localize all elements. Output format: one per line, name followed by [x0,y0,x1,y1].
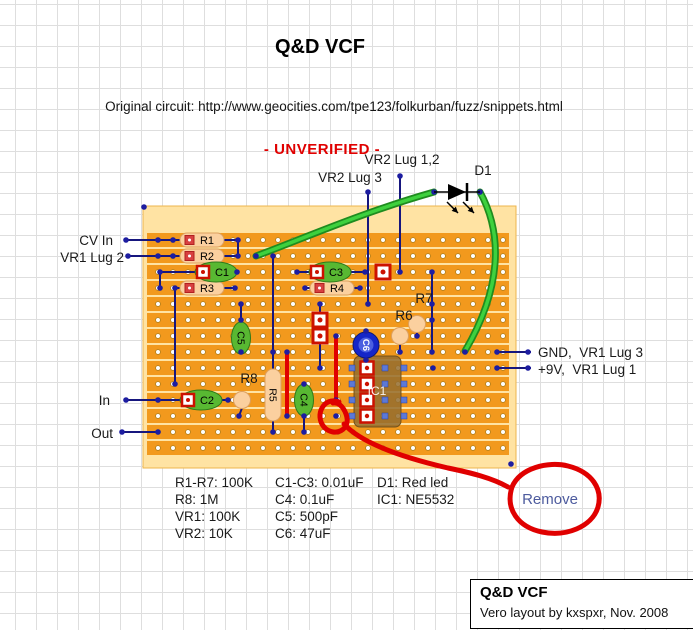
hole [201,334,206,339]
resistor-pad-dot [318,287,321,290]
ic-pin [401,365,407,371]
parts-list-column-3: D1: Red ledIC1: NE5532 [377,474,454,508]
wire-dot [123,237,129,243]
wire-dot [397,269,403,275]
hole [426,334,431,339]
hole [411,430,416,435]
source-url: Original circuit: http://www.geocities.c… [0,99,668,114]
hole [291,350,296,355]
ic-pad-dot [365,398,369,402]
parts-list-entry: D1: Red led [377,474,454,491]
hole [201,446,206,451]
hole [456,430,461,435]
parts-list-entry: R1-R7: 100K [175,474,253,491]
hole [486,334,491,339]
hole [486,446,491,451]
wire-dot [365,189,371,195]
hole [426,286,431,291]
hole [411,350,416,355]
hole [246,366,251,371]
hole [501,414,506,419]
hole [456,350,461,355]
wire-dot [123,397,129,403]
hole [471,446,476,451]
wire-dot [525,349,531,355]
ic-pin [349,381,355,387]
hole [261,318,266,323]
hole [456,366,461,371]
ic-pin [401,413,407,419]
wire-dot [430,365,436,371]
hole [501,302,506,307]
hole [441,318,446,323]
wire-dot [170,237,176,243]
wire-dot [429,317,435,323]
hole [246,318,251,323]
hole [201,318,206,323]
wire-dot [333,413,339,419]
hole [426,382,431,387]
hole [261,366,266,371]
hole [501,270,506,275]
hole [351,254,356,259]
wire-dot [172,381,178,387]
label-r7: R7 [415,291,432,306]
hole [426,398,431,403]
resistor-label-R1: R1 [200,235,214,247]
hole [306,350,311,355]
hole [441,238,446,243]
wire-dot [301,413,307,419]
hole [471,414,476,419]
wire-dot [170,253,176,259]
vero-layout-page: { "title": "Q&D VCF", "subtitle": "Origi… [0,0,693,630]
wire-dot [333,333,339,339]
wire-dot [494,365,500,371]
hole [441,286,446,291]
label-vr1-lug-2: VR1 Lug 2 [60,250,124,265]
hole [246,302,251,307]
hole [456,254,461,259]
wire-dot [362,269,368,275]
wire-dot [284,413,290,419]
hole [441,334,446,339]
hole [501,446,506,451]
hole [171,446,176,451]
hole [471,302,476,307]
hole [231,382,236,387]
hole [411,270,416,275]
hole [411,366,416,371]
hole [291,382,296,387]
resistor-R8 [234,392,251,409]
hole [486,366,491,371]
hole [426,446,431,451]
hole [411,254,416,259]
hole [381,334,386,339]
hole [261,270,266,275]
hole [471,382,476,387]
hole [441,366,446,371]
label-gnd-vr1-lug-3: GND, VR1 Lug 3 [538,345,643,360]
hole [381,286,386,291]
resistor-label-R3: R3 [200,283,214,295]
hole [291,430,296,435]
hole [261,350,266,355]
hole [156,334,161,339]
wire-dot [236,413,242,419]
hole [201,302,206,307]
hole [471,286,476,291]
wire-dot [363,328,369,334]
hole [381,254,386,259]
hole [321,446,326,451]
hole [156,446,161,451]
hole [486,238,491,243]
hole [426,414,431,419]
wire-dot [232,285,238,291]
label--9v-vr1-lug-1: +9V, VR1 Lug 1 [538,362,636,377]
hole [291,334,296,339]
hole [441,270,446,275]
label-in: In [99,393,110,408]
hole [186,350,191,355]
hole [216,350,221,355]
resistor-label-R5: R5 [267,388,279,402]
wire-dot [414,333,420,339]
wire-dot [302,285,308,291]
wire-dot [238,301,244,307]
hole [261,286,266,291]
hole [411,398,416,403]
hole [291,254,296,259]
hole [186,430,191,435]
hole [276,318,281,323]
wire-dot [317,365,323,371]
hole [276,270,281,275]
hole [231,318,236,323]
hole [336,254,341,259]
hole [276,350,281,355]
ic-pin [401,397,407,403]
ic-pin [382,413,388,419]
hole [411,446,416,451]
wire-dot [253,253,259,259]
hole [291,366,296,371]
hole [321,382,326,387]
hole [441,398,446,403]
hole [396,446,401,451]
hole [186,366,191,371]
label-r8: R8 [240,371,257,386]
label-d1: D1 [474,163,491,178]
wire-dot [157,269,163,275]
wire-dot [294,269,300,275]
ic-pin [382,365,388,371]
hole [381,350,386,355]
hole [471,318,476,323]
parts-list-entry: IC1: NE5532 [377,491,454,508]
hole [396,430,401,435]
parts-list-column-2: C1-C3: 0.01uFC4: 0.1uFC5: 500pFC6: 47uF [275,474,364,542]
hole [456,238,461,243]
connection-pad-dot [318,334,323,339]
hole [486,430,491,435]
parts-list-entry: R8: 1M [175,491,253,508]
hole [486,270,491,275]
hole [471,270,476,275]
led-triangle [448,184,466,200]
hole [426,366,431,371]
hole [366,430,371,435]
hole [456,334,461,339]
label-cv-in: CV In [79,233,113,248]
resistor-pad-dot [188,255,191,258]
connection-pad-dot [381,270,386,275]
hole [441,350,446,355]
hole [486,254,491,259]
hole [156,318,161,323]
hole [306,302,311,307]
hole [486,382,491,387]
wire-dot [119,429,125,435]
hole [456,270,461,275]
hole [396,286,401,291]
parts-list-column-1: R1-R7: 100KR8: 1MVR1: 100KVR2: 10K [175,474,253,542]
capacitor-pad-dot [201,270,205,274]
hole [471,254,476,259]
unverified-status: - UNVERIFIED - [0,141,644,158]
hole [246,430,251,435]
hole [261,446,266,451]
hole [381,238,386,243]
hole [471,238,476,243]
capacitor-pad-dot [315,270,319,274]
resistor-R6 [392,328,409,345]
hole [471,398,476,403]
hole [306,446,311,451]
hole [246,270,251,275]
hole [261,302,266,307]
capacitor-pad-dot [186,398,190,402]
wire-dot [157,285,163,291]
hole [336,446,341,451]
resistor-pad-dot [188,239,191,242]
parts-list-entry: VR2: 10K [175,525,253,542]
hole [216,430,221,435]
hole [501,382,506,387]
hole [336,302,341,307]
wire-dot [397,173,403,179]
hole [201,382,206,387]
wire-dot [238,349,244,355]
hole [456,382,461,387]
wire-dot [238,317,244,323]
hole [231,414,236,419]
label-r6: R6 [395,308,412,323]
remove-annotation-label: Remove [510,491,590,508]
hole [216,414,221,419]
hole [231,446,236,451]
hole [171,414,176,419]
ic-pin [349,413,355,419]
hole [291,302,296,307]
hole [276,430,281,435]
hole [291,414,296,419]
hole [261,334,266,339]
resistor-label-R4: R4 [330,283,344,295]
capacitor-label-C5: C5 [235,331,247,345]
capacitor-label-C4: C4 [298,393,310,407]
hole [456,446,461,451]
hole [411,382,416,387]
wire-dot [125,253,131,259]
wire-dot [235,253,241,259]
wire-dot [317,301,323,307]
wire-dot [301,381,307,387]
label-vr2-lug-3: VR2 Lug 3 [318,170,382,185]
capacitor-label-C1: C1 [215,267,229,279]
ic-pin [401,381,407,387]
hole [441,382,446,387]
hole [501,254,506,259]
ic-label: IC1 [368,384,387,398]
hole [501,334,506,339]
hole [321,350,326,355]
resistor-label-R2: R2 [200,251,214,263]
wire-dot [270,429,276,435]
hole [501,318,506,323]
ic-pad-dot [365,366,369,370]
wire-dot [462,349,468,355]
hole [291,446,296,451]
hole [396,302,401,307]
hole [276,446,281,451]
hole [201,414,206,419]
hole [276,302,281,307]
hole [456,414,461,419]
parts-list-entry: C6: 47uF [275,525,364,542]
hole [156,302,161,307]
hole [441,414,446,419]
hole [471,430,476,435]
hole [216,366,221,371]
hole [381,302,386,307]
hole [216,318,221,323]
hole [216,382,221,387]
ic-pin [349,397,355,403]
wire-dot [363,357,369,363]
hole [261,238,266,243]
hole [456,318,461,323]
hole [156,414,161,419]
hole [306,318,311,323]
wire-dot [365,301,371,307]
connection-pad-dot [318,318,323,323]
hole [471,350,476,355]
capacitor-label-C3: C3 [329,267,343,279]
hole [336,238,341,243]
hole [246,238,251,243]
wire-dot [525,365,531,371]
hole [216,302,221,307]
ic-pad-dot [365,414,369,418]
hole [201,366,206,371]
hole [246,254,251,259]
hole [441,302,446,307]
title-block-name: Q&D VCF [480,584,693,601]
hole [306,366,311,371]
hole [381,318,386,323]
wire-dot [494,349,500,355]
hole [156,350,161,355]
capacitor-label-C2: C2 [200,395,214,407]
hole [171,430,176,435]
parts-list-entry: C1-C3: 0.01uF [275,474,364,491]
hole [276,286,281,291]
hole [471,366,476,371]
wire-dot [155,397,161,403]
parts-list-entry: C5: 500pF [275,508,364,525]
wire-dot [270,253,276,259]
wire-dot [155,429,161,435]
wire-dot [155,253,161,259]
ic-pin [349,365,355,371]
parts-list-entry: C4: 0.1uF [275,491,364,508]
hole [231,366,236,371]
hole [276,334,281,339]
hole [501,430,506,435]
hole [231,302,236,307]
hole [486,350,491,355]
wire-dot [284,349,290,355]
hole [201,350,206,355]
hole [426,430,431,435]
hole [366,446,371,451]
hole [456,398,461,403]
hole [216,334,221,339]
hole [261,430,266,435]
hole [246,446,251,451]
hole [276,254,281,259]
wire-dot [172,285,178,291]
hole [441,446,446,451]
hole [186,382,191,387]
hole [156,366,161,371]
wire-dot [429,269,435,275]
resistor-pad-dot [188,287,191,290]
hole [501,286,506,291]
hole [321,254,326,259]
wire-dot [270,349,276,355]
hole [291,318,296,323]
hole [456,302,461,307]
hole [186,414,191,419]
hole [321,238,326,243]
hole [201,430,206,435]
wire-dot [235,237,241,243]
hole [156,382,161,387]
hole [411,414,416,419]
wire-dot [141,204,147,210]
hole [246,286,251,291]
hole [246,414,251,419]
hole [441,254,446,259]
wire-dot [155,237,161,243]
hole [411,286,416,291]
hole [351,318,356,323]
hole [426,254,431,259]
